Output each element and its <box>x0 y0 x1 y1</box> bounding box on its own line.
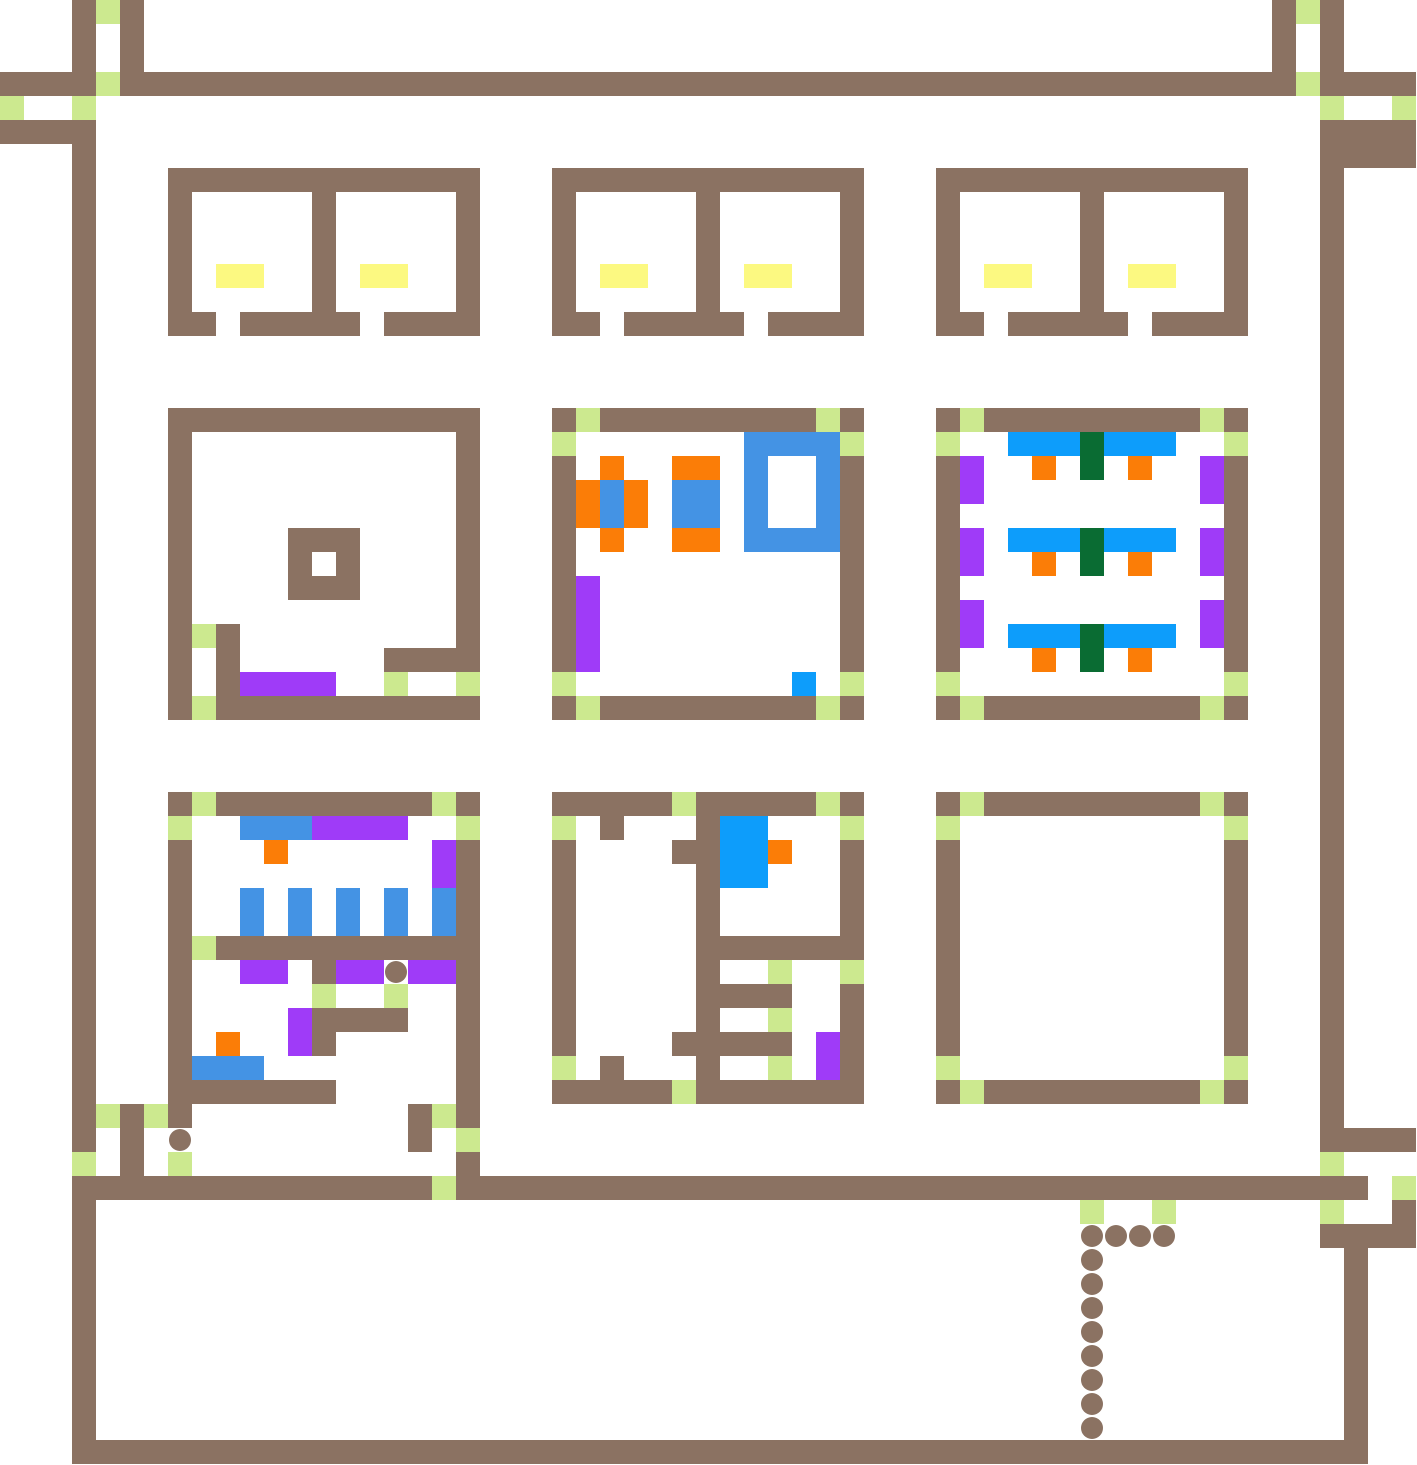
purple-bench <box>960 480 984 504</box>
wall-segment <box>840 408 864 432</box>
wall-segment <box>72 1200 96 1224</box>
wall-segment <box>168 216 192 240</box>
wall-segment <box>1320 648 1344 672</box>
bright-blue-furniture <box>720 816 768 840</box>
wall-segment <box>72 1008 96 1032</box>
wall-segment <box>72 912 96 936</box>
door-tile <box>552 432 576 456</box>
wall-segment <box>216 696 480 720</box>
wall-segment <box>1320 384 1344 408</box>
wall-segment <box>0 72 96 96</box>
wall-segment <box>72 288 96 312</box>
wall-segment <box>0 120 96 144</box>
wall-segment <box>72 1368 96 1392</box>
wall-segment <box>840 552 864 576</box>
wall-segment <box>72 720 96 744</box>
wall-segment <box>1320 552 1344 576</box>
wall-segment <box>168 960 192 984</box>
wall-segment <box>456 960 480 984</box>
door-tile <box>1392 1176 1416 1200</box>
wall-segment <box>168 624 192 648</box>
wall-segment <box>840 192 864 216</box>
wall-segment <box>552 600 576 624</box>
wall-segment <box>984 408 1200 432</box>
wall-segment <box>696 216 720 240</box>
purple-bench <box>1200 600 1224 624</box>
blue-furniture <box>816 504 840 528</box>
wall-segment <box>72 624 96 648</box>
wall-segment <box>120 1152 144 1176</box>
wall-segment <box>312 288 336 312</box>
door-tile <box>672 792 696 816</box>
purple-bench <box>960 552 984 576</box>
wall-segment <box>1320 168 1344 192</box>
orange-chair <box>576 480 600 504</box>
wall-segment <box>936 960 960 984</box>
wall-segment <box>120 24 144 48</box>
wall-segment <box>72 1416 96 1440</box>
door-tile <box>384 984 408 1008</box>
wall-segment <box>72 552 96 576</box>
purple-bench <box>1200 528 1224 552</box>
wall-segment <box>696 264 720 288</box>
wall-segment <box>1344 1248 1368 1272</box>
door-tile <box>72 96 96 120</box>
wall-segment <box>552 456 576 480</box>
wall-segment <box>936 1080 960 1104</box>
door-tile <box>72 1152 96 1176</box>
purple-bench <box>288 1008 312 1032</box>
wall-segment <box>72 576 96 600</box>
purple-bench <box>576 648 600 672</box>
wall-segment <box>72 336 96 360</box>
wall-segment <box>168 168 480 192</box>
wall-segment <box>168 672 192 696</box>
wall-segment <box>168 432 192 456</box>
wall-segment <box>72 1296 96 1320</box>
wall-segment <box>840 864 864 888</box>
wall-segment <box>312 1008 408 1032</box>
wall-segment <box>1224 792 1248 816</box>
wall-segment <box>72 936 96 960</box>
purple-bench <box>1200 624 1224 648</box>
wall-segment <box>1320 0 1344 24</box>
path-dot <box>1081 1273 1103 1295</box>
wall-segment <box>768 312 864 336</box>
purple-bench <box>960 528 984 552</box>
wall-segment <box>840 576 864 600</box>
wall-segment <box>72 0 96 24</box>
green-table <box>1080 528 1104 552</box>
wall-segment <box>1224 840 1248 864</box>
wall-segment <box>216 624 240 648</box>
wall-segment <box>1224 192 1248 216</box>
door-tile <box>96 72 120 96</box>
floorplan-canvas[interactable] <box>0 0 1417 1465</box>
wall-segment <box>1320 912 1344 936</box>
blue-furniture <box>744 480 768 504</box>
door-tile <box>936 672 960 696</box>
wall-segment <box>696 1056 720 1080</box>
wall-segment <box>72 144 96 168</box>
green-table <box>1080 432 1104 456</box>
wall-segment <box>72 1080 96 1104</box>
wall-segment <box>168 240 192 264</box>
wall-segment <box>312 960 336 984</box>
wall-segment <box>1344 1416 1368 1440</box>
wall-segment <box>1320 816 1344 840</box>
wall-segment <box>168 888 192 912</box>
wall-segment <box>936 576 960 600</box>
door-tile <box>384 672 408 696</box>
purple-bench <box>288 1032 312 1056</box>
wall-segment <box>168 1008 192 1032</box>
wall-segment <box>72 1392 96 1416</box>
bed-tile <box>1128 264 1176 288</box>
path-dot <box>169 1129 191 1151</box>
wall-segment <box>552 864 576 888</box>
blue-furniture <box>744 432 840 456</box>
wall-segment <box>384 312 480 336</box>
path-dot <box>1105 1225 1127 1247</box>
wall-segment <box>456 888 480 912</box>
blue-furniture <box>240 816 312 840</box>
wall-segment <box>552 648 576 672</box>
blue-furniture <box>744 456 768 480</box>
wall-segment <box>72 24 96 48</box>
path-dot <box>1129 1225 1151 1247</box>
wall-segment <box>1080 288 1104 312</box>
wall-segment <box>552 552 576 576</box>
purple-bench <box>1200 456 1224 480</box>
bright-blue-furniture <box>1008 432 1080 456</box>
wall-segment <box>168 456 192 480</box>
door-tile <box>1200 696 1224 720</box>
wall-segment <box>840 840 864 864</box>
wall-segment <box>696 936 864 960</box>
wall-segment <box>1344 1344 1368 1368</box>
purple-bench <box>816 1032 840 1056</box>
wall-segment <box>552 1008 576 1032</box>
blue-furniture <box>336 912 360 936</box>
wall-segment <box>1344 1392 1368 1416</box>
wall-segment <box>1224 984 1248 1008</box>
door-tile <box>432 1176 456 1200</box>
wall-segment <box>936 912 960 936</box>
door-tile <box>936 432 960 456</box>
wall-segment <box>1224 408 1248 432</box>
wall-segment <box>72 456 96 480</box>
wall-segment <box>840 696 864 720</box>
wall-segment <box>288 576 360 600</box>
orange-chair <box>1032 552 1056 576</box>
orange-chair <box>600 528 624 552</box>
purple-bench <box>1200 480 1224 504</box>
door-tile <box>960 408 984 432</box>
wall-segment <box>72 1272 96 1296</box>
bright-blue-furniture <box>720 864 768 888</box>
wall-segment <box>1320 480 1344 504</box>
wall-segment <box>936 456 960 480</box>
bed-tile <box>744 264 792 288</box>
wall-segment <box>72 960 96 984</box>
door-tile <box>840 960 864 984</box>
wall-segment <box>168 648 192 672</box>
blue-furniture <box>672 504 720 528</box>
wall-segment <box>456 216 480 240</box>
wall-segment <box>168 480 192 504</box>
wall-segment <box>600 816 624 840</box>
wall-segment <box>72 1320 96 1344</box>
door-tile <box>552 1056 576 1080</box>
wall-segment <box>168 792 192 816</box>
blue-furniture <box>816 456 840 480</box>
door-tile <box>1224 1056 1248 1080</box>
wall-segment <box>1320 312 1344 336</box>
wall-segment <box>936 888 960 912</box>
blue-furniture <box>744 528 840 552</box>
wall-segment <box>72 888 96 912</box>
purple-bench <box>816 1056 840 1080</box>
wall-segment <box>72 672 96 696</box>
door-tile <box>1296 0 1320 24</box>
wall-segment <box>936 840 960 864</box>
wall-segment <box>1320 360 1344 384</box>
wall-segment <box>72 408 96 432</box>
wall-segment <box>696 864 720 888</box>
path-dot <box>385 961 407 983</box>
wall-segment <box>456 1152 480 1176</box>
blue-furniture <box>384 888 408 912</box>
wall-segment <box>1320 216 1344 240</box>
door-tile <box>768 1008 792 1032</box>
wall-segment <box>456 432 480 456</box>
wall-segment <box>72 240 96 264</box>
wall-segment <box>72 1248 96 1272</box>
purple-bench <box>312 816 408 840</box>
door-tile <box>96 1104 120 1128</box>
wall-segment <box>168 1032 192 1056</box>
bright-blue-furniture <box>792 672 816 696</box>
wall-segment <box>1320 408 1344 432</box>
bright-blue-furniture <box>1008 624 1080 648</box>
wall-segment <box>840 888 864 912</box>
wall-segment <box>696 240 720 264</box>
wall-segment <box>552 792 672 816</box>
wall-segment <box>1344 1368 1368 1392</box>
wall-segment <box>72 192 96 216</box>
wall-segment <box>1224 240 1248 264</box>
wall-segment <box>72 216 96 240</box>
wall-segment <box>72 168 96 192</box>
wall-segment <box>120 72 1296 96</box>
wall-segment <box>552 480 576 504</box>
path-dot <box>1153 1225 1175 1247</box>
wall-segment <box>72 1344 96 1368</box>
wall-segment <box>168 552 192 576</box>
wall-segment <box>1320 336 1344 360</box>
wall-segment <box>384 648 480 672</box>
wall-segment <box>456 288 480 312</box>
wall-segment <box>456 1032 480 1056</box>
purple-bench <box>432 840 456 864</box>
blue-furniture <box>336 888 360 912</box>
door-tile <box>552 672 576 696</box>
orange-chair <box>672 456 720 480</box>
door-tile <box>576 696 600 720</box>
door-tile <box>1224 672 1248 696</box>
wall-segment <box>456 864 480 888</box>
wall-segment <box>456 984 480 1008</box>
path-dot <box>1081 1321 1103 1343</box>
wall-segment <box>168 864 192 888</box>
door-tile <box>456 1128 480 1152</box>
wall-segment <box>672 840 720 864</box>
wall-segment <box>936 696 960 720</box>
wall-segment <box>552 312 600 336</box>
wall-segment <box>312 1032 336 1056</box>
wall-segment <box>1320 864 1344 888</box>
wall-segment <box>984 1080 1200 1104</box>
path-dot <box>1081 1345 1103 1367</box>
wall-segment <box>1320 504 1344 528</box>
wall-segment <box>696 288 720 312</box>
wall-segment <box>456 528 480 552</box>
wall-segment <box>72 864 96 888</box>
wall-segment <box>456 240 480 264</box>
wall-segment <box>72 648 96 672</box>
wall-segment <box>552 168 864 192</box>
wall-segment <box>1320 24 1344 48</box>
wall-segment <box>696 960 720 984</box>
door-tile <box>936 816 960 840</box>
orange-chair <box>600 456 624 480</box>
wall-segment <box>840 624 864 648</box>
wall-segment <box>456 624 480 648</box>
wall-segment <box>936 600 960 624</box>
wall-segment <box>456 504 480 528</box>
wall-segment <box>408 1128 432 1152</box>
wall-segment <box>696 1080 864 1104</box>
orange-chair <box>1128 648 1152 672</box>
door-tile <box>1080 1200 1104 1224</box>
door-tile <box>432 792 456 816</box>
wall-segment <box>1272 48 1296 72</box>
wall-segment <box>696 984 792 1008</box>
wall-segment <box>936 168 1248 192</box>
wall-segment <box>936 648 960 672</box>
wall-segment <box>936 264 960 288</box>
blue-furniture <box>744 504 768 528</box>
wall-segment <box>1320 960 1344 984</box>
wall-segment <box>312 192 336 216</box>
wall-segment <box>1320 600 1344 624</box>
wall-segment <box>72 1440 1368 1464</box>
bright-blue-furniture <box>720 840 768 864</box>
door-tile <box>96 0 120 24</box>
wall-segment <box>1320 1008 1344 1032</box>
wall-segment <box>552 288 576 312</box>
blue-furniture <box>288 912 312 936</box>
wall-segment <box>1320 264 1344 288</box>
green-table <box>1080 552 1104 576</box>
wall-segment <box>456 480 480 504</box>
door-tile <box>1320 1200 1344 1224</box>
wall-segment <box>840 984 864 1008</box>
blue-furniture <box>432 912 456 936</box>
wall-segment <box>936 1008 960 1032</box>
wall-segment <box>168 408 480 432</box>
wall-segment <box>456 840 480 864</box>
wall-segment <box>1320 72 1416 96</box>
door-tile <box>960 1080 984 1104</box>
wall-segment <box>936 528 960 552</box>
door-tile <box>768 1056 792 1080</box>
blue-furniture <box>432 888 456 912</box>
door-tile <box>1224 432 1248 456</box>
wall-segment <box>1320 744 1344 768</box>
wall-segment <box>1344 1272 1368 1296</box>
green-table <box>1080 456 1104 480</box>
wall-segment <box>552 1032 576 1056</box>
wall-segment <box>936 408 960 432</box>
bright-blue-furniture <box>1008 528 1080 552</box>
door-tile <box>672 1080 696 1104</box>
purple-bench <box>960 600 984 624</box>
wall-segment <box>840 912 864 936</box>
door-tile <box>576 408 600 432</box>
orange-chair <box>576 504 600 528</box>
wall-segment <box>168 576 192 600</box>
wall-segment <box>1320 720 1344 744</box>
wall-segment <box>456 912 480 936</box>
wall-segment <box>72 528 96 552</box>
wall-segment <box>1224 552 1248 576</box>
door-tile <box>552 816 576 840</box>
wall-segment <box>216 792 432 816</box>
wall-segment <box>72 840 96 864</box>
wall-segment <box>840 216 864 240</box>
wall-segment <box>840 648 864 672</box>
bright-blue-furniture <box>1104 528 1176 552</box>
path-dot <box>1081 1369 1103 1391</box>
wall-segment <box>168 696 192 720</box>
wall-segment <box>936 792 960 816</box>
orange-chair <box>768 840 792 864</box>
blue-furniture <box>240 912 264 936</box>
wall-segment <box>168 936 192 960</box>
wall-segment <box>168 984 192 1008</box>
wall-segment <box>1224 624 1248 648</box>
wall-segment <box>1224 1080 1248 1104</box>
path-dot <box>1081 1417 1103 1439</box>
wall-segment <box>1080 216 1104 240</box>
wall-segment <box>1224 264 1248 288</box>
wall-segment <box>1320 624 1344 648</box>
blue-furniture <box>600 504 624 528</box>
door-tile <box>192 624 216 648</box>
door-tile <box>1320 96 1344 120</box>
wall-segment <box>72 696 96 720</box>
wall-segment <box>696 912 720 936</box>
wall-segment <box>696 816 720 840</box>
purple-bench <box>576 624 600 648</box>
wall-segment <box>456 552 480 576</box>
wall-segment <box>600 1056 624 1080</box>
purple-bench <box>1200 552 1224 576</box>
wall-segment <box>1224 888 1248 912</box>
wall-segment <box>936 984 960 1008</box>
